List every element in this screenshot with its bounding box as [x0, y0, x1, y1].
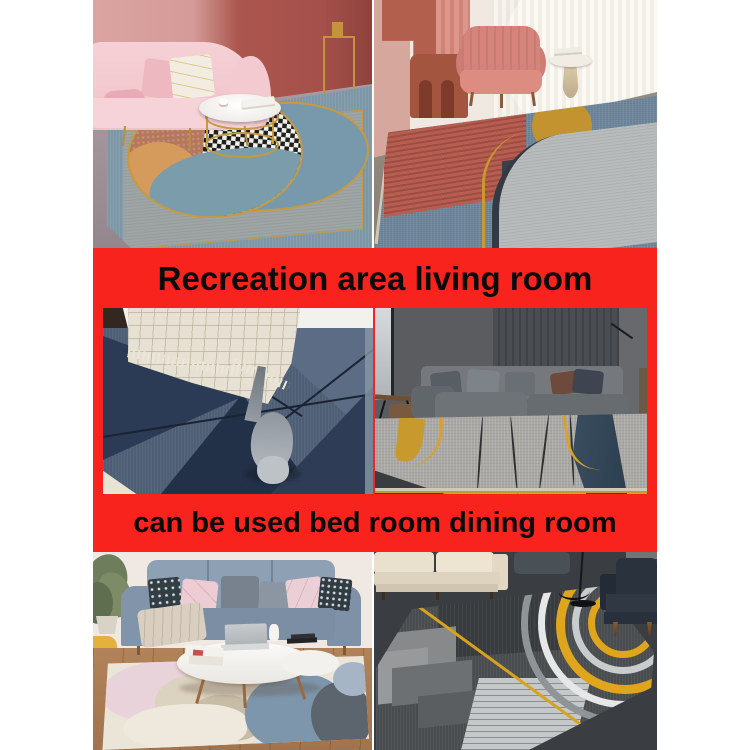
sofa-base: [376, 584, 498, 592]
photo-cat-on-geometric-rug: [103, 308, 373, 494]
table-post: [206, 114, 208, 144]
banner-top: Recreation area living room: [93, 248, 657, 308]
cat-head: [257, 456, 289, 484]
chair-leg: [500, 94, 503, 108]
banner-bottom: can be used bed room dining room: [93, 494, 657, 552]
photo-blue-sofa-pastel-rug: [93, 552, 372, 750]
lamp-cable: [558, 582, 590, 600]
rug-wavy-line: [538, 414, 549, 492]
photo-salmon-armchair-room: [374, 0, 657, 248]
patterned-pillow: [317, 576, 352, 611]
gold-pot: [332, 22, 343, 36]
sofa-leg: [436, 592, 439, 600]
navy-pillow: [572, 368, 604, 395]
red-banner-section: Recreation area living room: [93, 248, 657, 552]
photo-grey-sofa-dark-room: [375, 308, 647, 494]
product-image: Recreation area living room: [0, 0, 750, 750]
window: [375, 308, 394, 400]
rug-red-grey-geometric: [374, 96, 657, 248]
photo-dark-lounge-arc-rug: [374, 552, 657, 750]
rug-edge: [365, 328, 373, 494]
rug-wavy-line: [510, 416, 519, 494]
rug-wavy-line: [476, 416, 483, 492]
white-vase: [269, 624, 279, 641]
photo-collage: Recreation area living room: [93, 0, 657, 750]
armchair-seat: [460, 70, 542, 94]
cream-sofa-cushion: [374, 552, 434, 574]
throw-blanket: [137, 602, 208, 649]
side-table-top: [550, 54, 592, 67]
plant-pot: [95, 616, 119, 634]
floor-lamp-base: [570, 600, 596, 607]
coffee-table-base: [205, 132, 279, 158]
rug-cream-blob: [123, 704, 247, 750]
sofa-leg: [490, 592, 493, 600]
photo-pink-sofa-living-room: [93, 0, 372, 248]
sofa-leg: [137, 646, 140, 655]
magazine: [189, 655, 223, 666]
rug-gold-curve: [404, 413, 444, 469]
tea-cup: [219, 98, 228, 105]
nesting-table: [281, 650, 339, 676]
chair-leg: [646, 622, 653, 636]
arch-opening: [441, 80, 454, 118]
table-post: [272, 114, 274, 144]
sofa-leg: [189, 128, 191, 148]
chair-leg: [469, 92, 474, 106]
sofa-leg: [343, 646, 346, 655]
ottoman: [514, 552, 570, 574]
rug-grey-teal-band: [375, 412, 647, 494]
arch-opening: [419, 80, 432, 118]
floor-corner: [103, 454, 165, 494]
rug-gold-edge: [375, 491, 647, 493]
cream-sofa-cushion: [436, 552, 494, 574]
gold-print-cushion: [169, 54, 215, 100]
side-table-stem: [562, 64, 579, 98]
sofa-leg: [382, 592, 385, 600]
